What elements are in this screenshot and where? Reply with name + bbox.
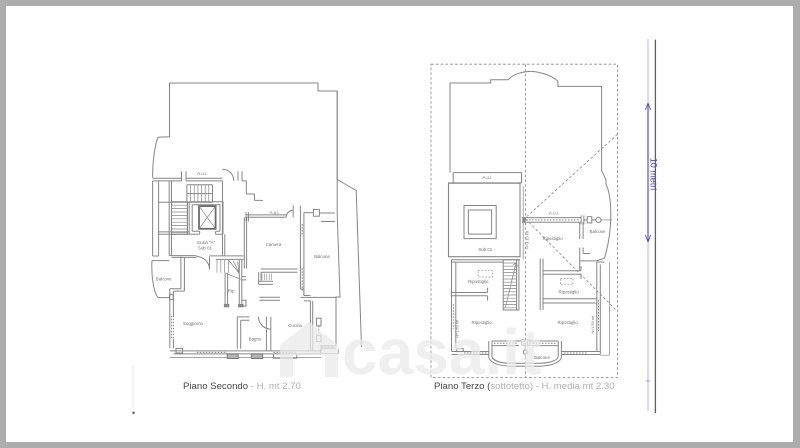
svg-text:casa.it: casa.it <box>342 316 541 388</box>
